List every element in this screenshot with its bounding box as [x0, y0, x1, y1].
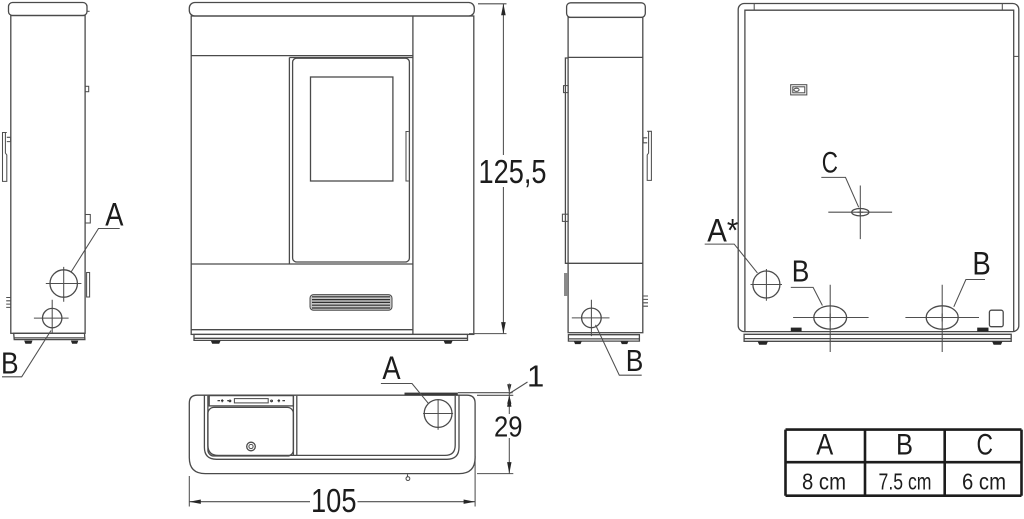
svg-text:105: 105 — [311, 482, 357, 519]
svg-text:B: B — [1, 345, 19, 380]
svg-text:C: C — [822, 146, 838, 179]
svg-text:B: B — [896, 429, 913, 462]
svg-text:1: 1 — [527, 358, 544, 393]
svg-text:A*: A* — [707, 213, 738, 249]
svg-text:7.5 cm: 7.5 cm — [879, 468, 932, 494]
svg-text:A: A — [105, 197, 124, 233]
svg-text:C: C — [977, 429, 994, 462]
svg-text:B: B — [792, 254, 810, 289]
svg-text:A: A — [382, 350, 401, 386]
svg-text:125,5: 125,5 — [479, 153, 547, 190]
svg-text:B: B — [626, 343, 644, 378]
svg-text:A: A — [816, 429, 833, 462]
svg-text:B: B — [972, 246, 990, 282]
svg-text:6 cm: 6 cm — [962, 468, 1006, 494]
svg-text:8 cm: 8 cm — [802, 468, 846, 494]
svg-text:29: 29 — [494, 412, 523, 444]
